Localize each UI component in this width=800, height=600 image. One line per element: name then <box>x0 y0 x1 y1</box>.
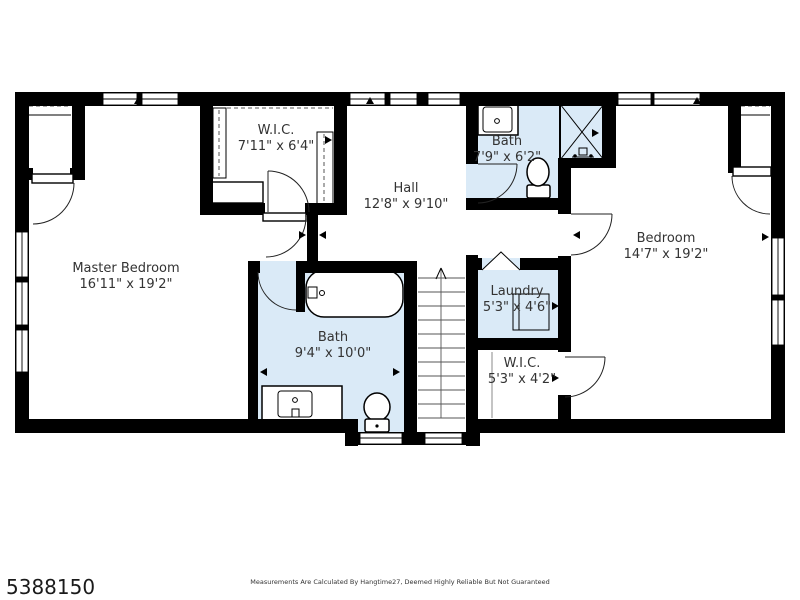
room-name: W.I.C. <box>238 123 314 139</box>
bathtub <box>306 270 403 317</box>
room-dims: 7'9" x 6'2" <box>473 150 541 166</box>
room-label-hall: Hall 12'8" x 9'10" <box>364 181 449 213</box>
room-label-master-bedroom: Master Bedroom 16'11" x 19'2" <box>72 261 179 293</box>
room-label-laundry: Laundry 5'3" x 4'6" <box>483 284 551 316</box>
vanity-sink-main-bath <box>262 386 342 420</box>
shower <box>560 104 604 160</box>
room-name: Bath <box>473 134 541 150</box>
stairs-up-arrow <box>436 268 441 279</box>
room-dims: 16'11" x 19'2" <box>72 277 179 293</box>
wic-top-door <box>268 171 309 212</box>
master-closet-door <box>32 174 74 224</box>
measurement-disclaimer: Measurements Are Calculated By Hangtime2… <box>250 578 549 586</box>
room-label-bedroom: Bedroom 14'7" x 19'2" <box>624 231 709 263</box>
room-label-bath-top: Bath 7'9" x 6'2" <box>473 134 541 166</box>
room-name: Bath <box>295 330 371 346</box>
room-name: W.I.C. <box>488 356 556 372</box>
room-name: Laundry <box>483 284 551 300</box>
floor-plan-drawing <box>0 0 800 600</box>
room-label-wic-top: W.I.C. 7'11" x 6'4" <box>238 123 314 155</box>
room-name: Hall <box>364 181 449 197</box>
room-label-bath-main: Bath 9'4" x 10'0" <box>295 330 371 362</box>
room-name: Bedroom <box>624 231 709 247</box>
wic-bottom-door <box>565 357 605 397</box>
room-dims: 9'4" x 10'0" <box>295 346 371 362</box>
room-dims: 12'8" x 9'10" <box>364 197 449 213</box>
room-dims: 5'3" x 4'2" <box>488 372 556 388</box>
room-dims: 5'3" x 4'6" <box>483 300 551 316</box>
bedroom-closet-door <box>732 167 771 214</box>
floor-plan-page: Master Bedroom 16'11" x 19'2" W.I.C. 7'1… <box>0 0 800 600</box>
room-label-wic-bottom: W.I.C. 5'3" x 4'2" <box>488 356 556 388</box>
room-dims: 14'7" x 19'2" <box>624 247 709 263</box>
staircase <box>418 268 465 418</box>
toilet-main-bath <box>364 393 390 432</box>
listing-id: 5388150 <box>6 575 95 599</box>
room-dims: 7'11" x 6'4" <box>238 139 314 155</box>
room-name: Master Bedroom <box>72 261 179 277</box>
